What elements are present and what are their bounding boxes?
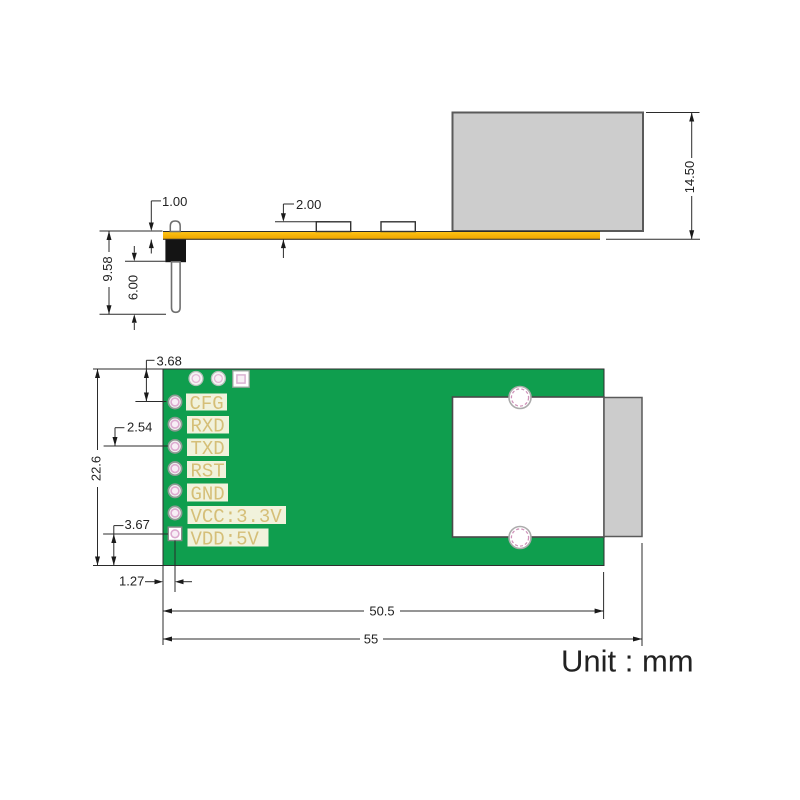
svg-text:TXD: TXD	[191, 438, 225, 460]
svg-text:1.00: 1.00	[162, 194, 187, 209]
svg-text:2.54: 2.54	[127, 420, 152, 435]
svg-text:RXD: RXD	[191, 416, 225, 438]
svg-text:50.5: 50.5	[369, 604, 394, 619]
svg-text:6.00: 6.00	[125, 275, 140, 300]
svg-text:Unit : mm: Unit : mm	[561, 644, 694, 679]
svg-text:VCC:3.3V: VCC:3.3V	[191, 506, 283, 528]
svg-text:3.68: 3.68	[157, 354, 182, 369]
svg-text:CFG: CFG	[190, 393, 224, 415]
svg-text:2.00: 2.00	[296, 197, 321, 212]
svg-text:GND: GND	[191, 484, 225, 506]
svg-text:14.50: 14.50	[682, 161, 697, 194]
svg-text:3.67: 3.67	[125, 517, 150, 532]
svg-text:9.58: 9.58	[100, 256, 115, 281]
svg-text:55: 55	[364, 632, 378, 647]
svg-text:1.27: 1.27	[119, 574, 144, 589]
svg-text:22.6: 22.6	[88, 456, 103, 481]
svg-text:VDD:5V: VDD:5V	[191, 528, 260, 550]
svg-text:RST: RST	[191, 460, 225, 482]
